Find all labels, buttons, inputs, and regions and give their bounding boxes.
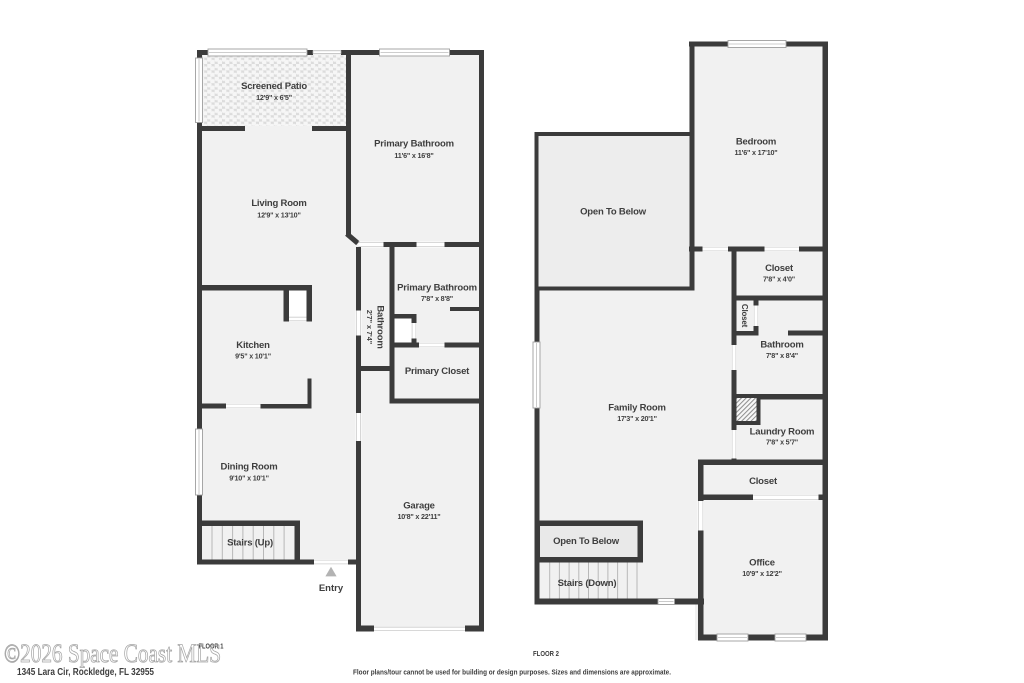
- svg-text:FLOOR 2: FLOOR 2: [533, 649, 559, 658]
- svg-text:9'5" x 10'1": 9'5" x 10'1": [235, 352, 271, 361]
- svg-text:12'9" x 6'5": 12'9" x 6'5": [256, 93, 292, 102]
- svg-text:Primary Closet: Primary Closet: [405, 366, 470, 377]
- svg-text:Open To Below: Open To Below: [580, 207, 647, 218]
- svg-text:Stairs (Up): Stairs (Up): [227, 538, 273, 549]
- svg-text:Living Room: Living Room: [251, 198, 306, 209]
- svg-text:12'9" x 13'10": 12'9" x 13'10": [257, 211, 300, 220]
- svg-text:7'8" x 4'0": 7'8" x 4'0": [763, 275, 795, 284]
- svg-text:Bathroom: Bathroom: [760, 340, 803, 351]
- svg-text:Primary Bathroom: Primary Bathroom: [374, 139, 454, 150]
- svg-text:Closet: Closet: [749, 476, 778, 487]
- svg-text:1345 Lara Cir, Rockledge, FL 3: 1345 Lara Cir, Rockledge, FL 32955: [17, 666, 154, 678]
- svg-text:Stairs (Down): Stairs (Down): [558, 578, 617, 589]
- svg-text:7'8" x 5'7": 7'8" x 5'7": [766, 438, 798, 447]
- svg-text:10'9" x 12'2": 10'9" x 12'2": [742, 569, 782, 578]
- svg-text:9'10" x 10'1": 9'10" x 10'1": [229, 474, 269, 483]
- svg-text:Bathroom: Bathroom: [375, 305, 386, 348]
- svg-text:Floor plans/tour cannot be use: Floor plans/tour cannot be used for buil…: [353, 668, 671, 677]
- svg-text:Dining Room: Dining Room: [221, 462, 278, 473]
- svg-text:7'8" x 8'4": 7'8" x 8'4": [766, 351, 798, 360]
- svg-text:11'6" x 17'10": 11'6" x 17'10": [734, 148, 777, 157]
- svg-text:10'8" x 22'11": 10'8" x 22'11": [397, 512, 440, 521]
- svg-text:Garage: Garage: [403, 501, 435, 512]
- svg-text:Family Room: Family Room: [608, 403, 665, 414]
- svg-text:17'3" x 20'1": 17'3" x 20'1": [617, 414, 657, 423]
- svg-text:Primary Bathroom: Primary Bathroom: [397, 283, 477, 294]
- svg-text:11'6" x 16'8": 11'6" x 16'8": [394, 151, 433, 160]
- svg-text:7'8" x 8'8": 7'8" x 8'8": [421, 294, 453, 303]
- svg-text:Screened Patio: Screened Patio: [241, 81, 307, 92]
- svg-text:Closet: Closet: [740, 304, 749, 328]
- svg-text:Office: Office: [749, 558, 775, 569]
- svg-text:Kitchen: Kitchen: [236, 340, 270, 351]
- svg-text:Closet: Closet: [765, 263, 794, 274]
- svg-text:Entry: Entry: [319, 583, 344, 594]
- svg-text:2'7" x 7'4": 2'7" x 7'4": [365, 310, 374, 344]
- svg-text:©2026 Space Coast MLS: ©2026 Space Coast MLS: [4, 639, 221, 668]
- svg-text:Open To Below: Open To Below: [553, 536, 620, 547]
- svg-text:Bedroom: Bedroom: [736, 137, 776, 148]
- svg-text:Laundry Room: Laundry Room: [750, 427, 815, 438]
